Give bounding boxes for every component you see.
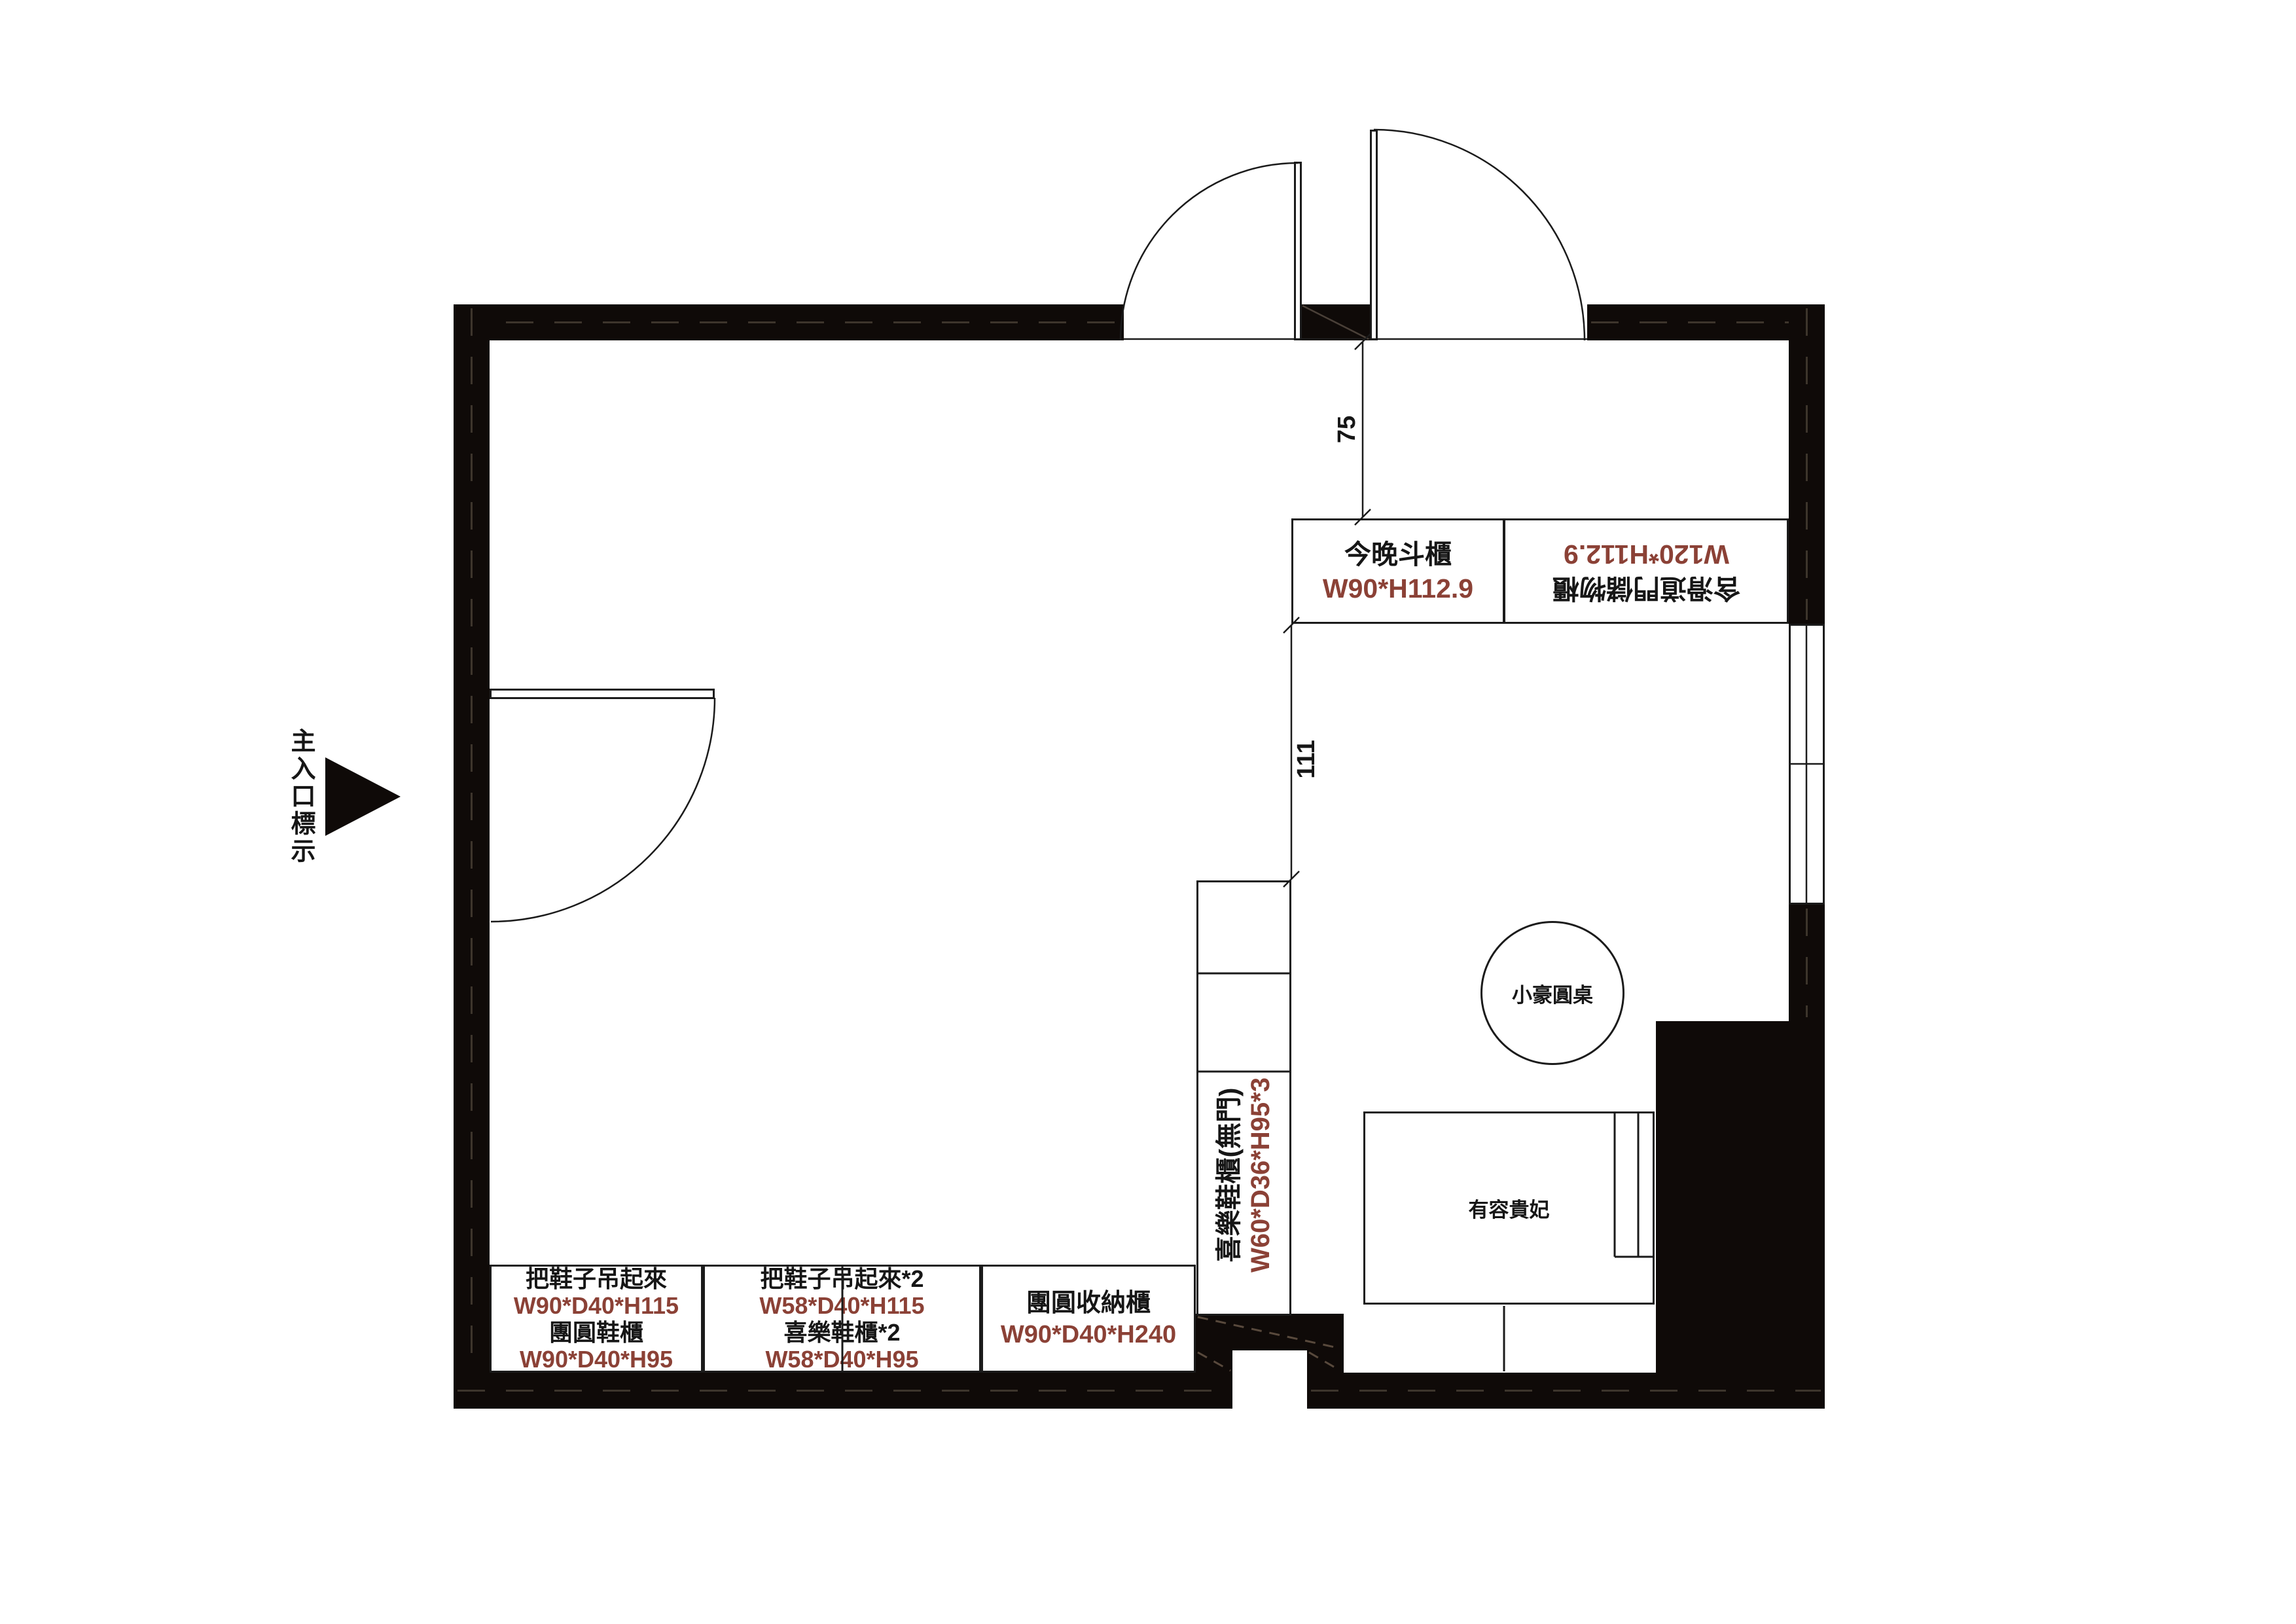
shoe-column-name: 喜樂鞋櫃(無門) xyxy=(1213,1088,1245,1263)
bottom-cabinet-1-line3: 團圓鞋櫃 xyxy=(549,1319,643,1346)
round-table: 小豪圓桌 xyxy=(1480,921,1624,1065)
door-leaf-entrance xyxy=(490,689,715,699)
bottom-cabinet-1-line2: W90*D40*H115 xyxy=(514,1292,679,1319)
door-leaf-top-right xyxy=(1370,130,1378,340)
wall-right-block xyxy=(1656,1021,1825,1409)
door-arc-entrance xyxy=(491,698,715,922)
dim-door-offset-value: 75 xyxy=(1333,416,1361,443)
bottom-cabinet-1: 把鞋子吊起來 W90*D40*H115 團圓鞋櫃 W90*D40*H95 xyxy=(490,1265,703,1373)
cabinet-sliding-storage-name: 含滑道門儲物櫃 xyxy=(1552,571,1740,605)
window xyxy=(1789,624,1825,905)
wall-bottom-right xyxy=(1307,1373,1825,1409)
bottom-cabinet-2: 把鞋子吊起來*2 W58*D40*H115 喜樂鞋櫃*2 W58*D40*H95 xyxy=(703,1265,981,1373)
bottom-cabinet-1-line1: 把鞋子吊起來 xyxy=(526,1265,667,1292)
wall-opening-stub-right xyxy=(1307,1350,1344,1373)
cabinet-sliding-storage: 含滑道門儲物櫃 W120*H112.9 xyxy=(1503,518,1789,624)
bottom-cabinet-3-size: W90*D40*H240 xyxy=(1001,1319,1176,1350)
bottom-cabinet-2-line3: 喜樂鞋櫃*2 xyxy=(783,1319,900,1346)
dim-label-door-offset: 75 xyxy=(1334,397,1360,462)
cabinet-dresser: 今晚斗櫃 W90*H112.9 xyxy=(1291,518,1505,624)
bottom-cabinet-1-line4: W90*D40*H95 xyxy=(520,1346,673,1373)
shoe-column-size: W60*D36*H95*3 xyxy=(1245,1077,1276,1272)
bottom-cabinet-3-name: 團圓收納櫃 xyxy=(1026,1288,1151,1319)
wall-right-upper xyxy=(1789,304,1825,624)
entrance-arrow-icon xyxy=(325,757,401,836)
door-arc-top-left xyxy=(1121,163,1298,340)
wall-door-post xyxy=(1301,304,1370,340)
bottom-cabinet-3: 團圓收納櫃 W90*D40*H240 xyxy=(981,1265,1196,1373)
wall-top-left xyxy=(454,304,1124,340)
chaise-lounge-label: 有容貴妃 xyxy=(1469,1193,1550,1223)
door-leaf-top-left xyxy=(1294,162,1302,340)
dim-column-gap-value: 111 xyxy=(1293,740,1321,778)
cabinet-dresser-size: W90*H112.9 xyxy=(1323,571,1473,605)
chaise-lounge: 有容貴妃 xyxy=(1363,1111,1655,1305)
bottom-cabinet-2-line2: W58*D40*H115 xyxy=(759,1292,924,1319)
wall-bottom-left xyxy=(454,1373,1232,1409)
dim-label-column-gap: 111 xyxy=(1293,727,1319,792)
wall-left xyxy=(454,304,490,1409)
door-arc-top-right xyxy=(1374,130,1585,340)
entrance-label: 主入口標示 xyxy=(283,728,319,869)
shoe-column-label: 喜樂鞋櫃(無門) W60*D36*H95*3 xyxy=(1213,979,1276,1371)
bottom-cabinet-2-line4: W58*D40*H95 xyxy=(765,1346,918,1373)
bottom-cabinet-2-line1: 把鞋子吊起來*2 xyxy=(760,1265,924,1292)
cabinet-sliding-storage-size: W120*H112.9 xyxy=(1564,537,1729,571)
floor-plan-canvas: 今晚斗櫃 W90*H112.9 含滑道門儲物櫃 W120*H112.9 喜樂鞋櫃… xyxy=(0,0,2296,1624)
cabinet-dresser-name: 今晚斗櫃 xyxy=(1344,537,1452,571)
wall-right-mid xyxy=(1789,905,1825,1021)
round-table-label: 小豪圓桌 xyxy=(1512,979,1593,1008)
